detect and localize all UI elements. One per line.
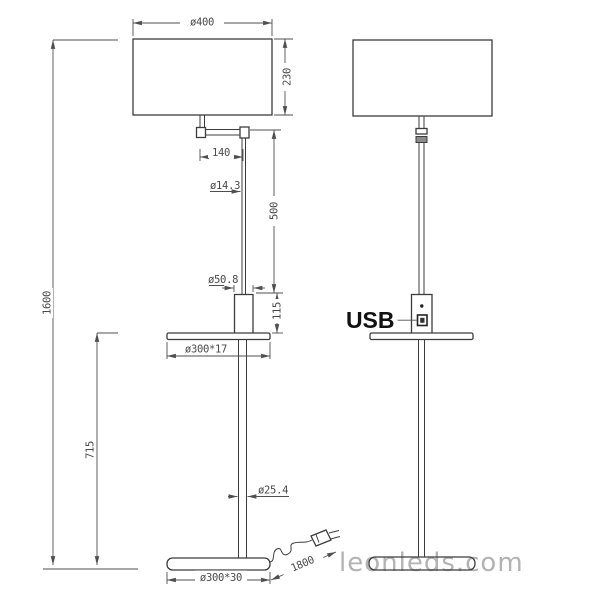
- arm-joint-right: [240, 127, 249, 138]
- svg-text:ø300*17: ø300*17: [185, 344, 227, 356]
- svg-text:ø400: ø400: [190, 17, 214, 29]
- svg-text:230: 230: [282, 68, 294, 86]
- arm-joint-left: [197, 128, 206, 138]
- svg-text:ø25.4: ø25.4: [258, 485, 288, 497]
- lampshade-side: [133, 39, 272, 115]
- dim-shade-diameter: ø400: [133, 15, 272, 37]
- shade-stub: [200, 115, 205, 128]
- dim-shade-height: 230: [274, 39, 294, 115]
- table-shelf-front: [370, 333, 473, 340]
- svg-text:1600: 1600: [42, 291, 54, 315]
- svg-text:ø50.8: ø50.8: [208, 274, 238, 286]
- usb-port-pin: [420, 318, 424, 323]
- technical-drawing-page: leonleds.com: [0, 0, 600, 600]
- svg-text:ø300*30: ø300*30: [200, 572, 242, 584]
- dim-cable-length: 1800: [271, 549, 336, 580]
- svg-text:ø14.3: ø14.3: [210, 180, 240, 192]
- dim-pole-diameter: ø25.4: [228, 485, 289, 497]
- dim-table-height: 715: [84, 333, 118, 565]
- shade-neck: [419, 116, 424, 129]
- plug-body: [311, 530, 331, 546]
- pole-collar-lower: [416, 137, 427, 143]
- base-front: [369, 557, 475, 570]
- left-view: [133, 39, 340, 570]
- dim-column-height: 115: [271, 293, 284, 333]
- switch-dot: [420, 304, 423, 307]
- plug-prongs: [329, 531, 340, 540]
- svg-text:1800: 1800: [289, 554, 316, 574]
- pole-collar-upper: [416, 129, 427, 135]
- svg-text:140: 140: [212, 147, 230, 159]
- base-side: [167, 558, 270, 570]
- usb-label: USB: [346, 307, 395, 333]
- dim-base-size: ø300*30: [167, 571, 270, 585]
- lampshade-front: [353, 40, 492, 116]
- svg-text:715: 715: [85, 441, 97, 459]
- upper-rod: [242, 138, 246, 295]
- right-view: USB: [346, 40, 492, 570]
- floor-lamp-technical-drawing: USB ø400 230 140: [0, 0, 600, 600]
- svg-text:500: 500: [269, 202, 281, 220]
- dim-arm-length: 140: [200, 147, 243, 161]
- upper-pole-front: [419, 143, 424, 295]
- column-block-side: [235, 295, 254, 334]
- lower-pole-side: [239, 340, 247, 559]
- swing-arm: [206, 130, 241, 136]
- lower-pole-front: [419, 340, 425, 558]
- dim-table-size: ø300*17: [167, 342, 270, 359]
- power-plug: [311, 530, 340, 546]
- svg-text:115: 115: [272, 302, 284, 320]
- dim-rod-diameter: ø14.3: [210, 180, 241, 192]
- table-shelf-side: [167, 333, 270, 340]
- dim-rod-length: 500: [250, 130, 283, 293]
- dim-column-diameter: ø50.8: [208, 274, 265, 292]
- dim-total-height: 1600: [41, 40, 138, 569]
